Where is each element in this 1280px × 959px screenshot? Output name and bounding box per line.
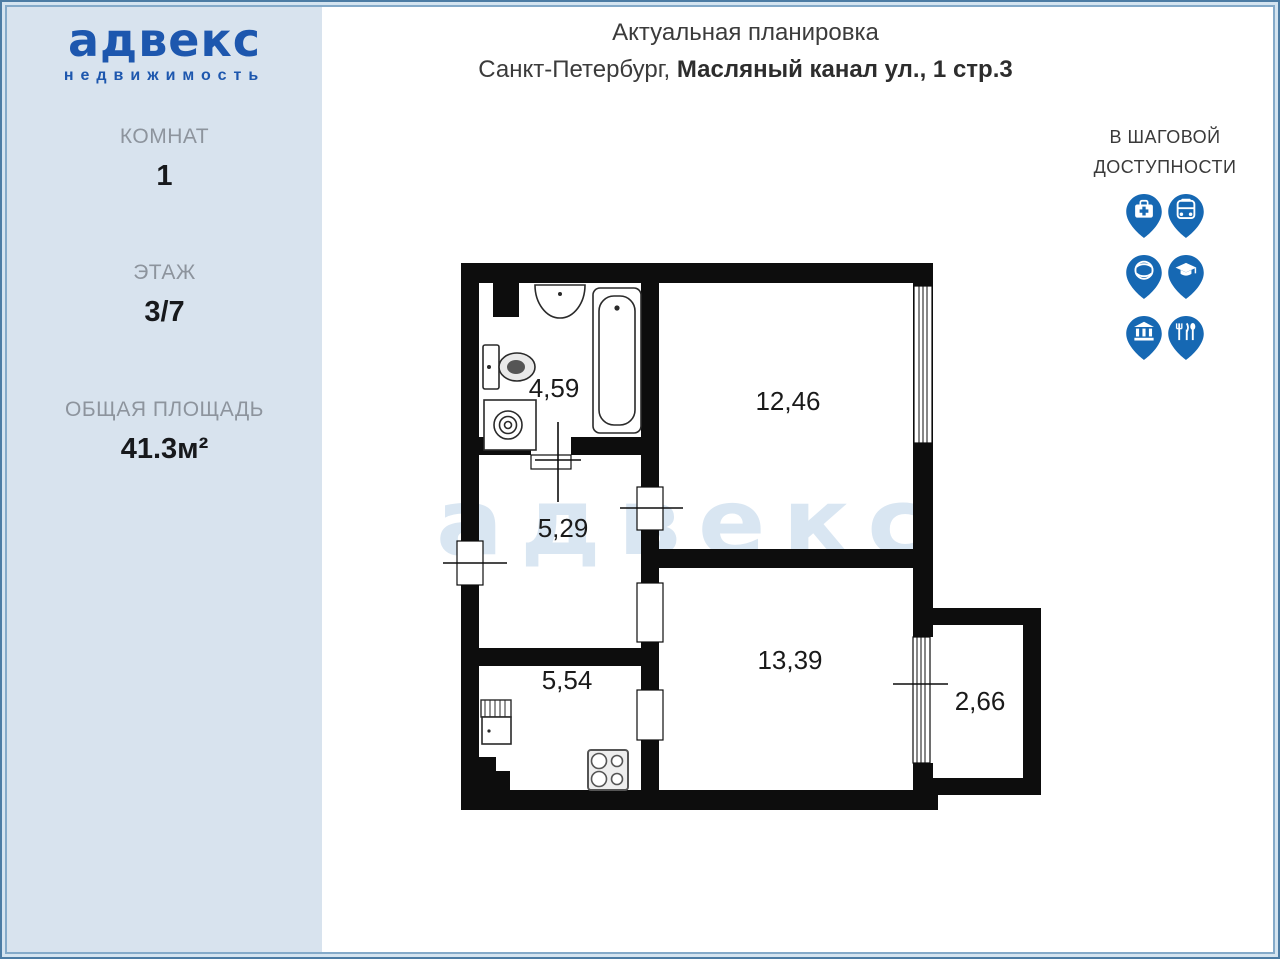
walkability-block: В ШАГОВОЙ ДОСТУПНОСТИ: [1075, 122, 1255, 361]
bedroom-door: [620, 487, 683, 530]
bathroom-area-label: 4,59: [529, 373, 580, 403]
sink-icon: [535, 285, 585, 318]
outer-frame: адвекс недвижимость КОМНАТ 1 ЭТАЖ 3/7 ОБ…: [2, 2, 1278, 957]
agency-logo: адвекс недвижимость: [7, 17, 322, 85]
main-panel: Актуальная планировка Санкт-Петербург, М…: [322, 7, 1273, 952]
stat-total-area-value: 41.3м²: [7, 433, 322, 466]
walkability-heading-line2: ДОСТУПНОСТИ: [1075, 152, 1255, 182]
address-line: Санкт-Петербург, Масляный канал ул., 1 с…: [322, 56, 1169, 84]
agency-brand-name: адвекс: [7, 17, 322, 63]
medical-icon: [1125, 193, 1163, 239]
stat-total-area-label: ОБЩАЯ ПЛОЩАДЬ: [7, 398, 322, 422]
bedroom-window: [914, 286, 932, 443]
header: Актуальная планировка Санкт-Петербург, М…: [322, 19, 1273, 84]
agency-tagline: недвижимость: [7, 66, 322, 85]
kitchen-sink-icon: [481, 700, 511, 744]
entry-door: [443, 541, 507, 585]
museum-icon: [1125, 315, 1163, 361]
stat-floor-value: 3/7: [7, 296, 322, 329]
bedroom-area-label: 12,46: [755, 386, 820, 416]
address-city: Санкт-Петербург,: [478, 56, 677, 83]
stat-floor-label: ЭТАЖ: [7, 261, 322, 285]
stat-rooms-value: 1: [7, 160, 322, 193]
bus-icon: [1167, 193, 1205, 239]
bathtub-icon: [593, 288, 641, 433]
stove-icon: [588, 750, 628, 790]
washing-machine-icon: [484, 400, 536, 450]
restaurant-icon: [1167, 315, 1205, 361]
sport-icon: [1125, 254, 1163, 300]
kitchen-area-label: 5,54: [542, 665, 593, 695]
balcony-window: [893, 637, 948, 763]
living-room-opening: [637, 583, 663, 642]
sidebar: адвекс недвижимость КОМНАТ 1 ЭТАЖ 3/7 ОБ…: [7, 7, 322, 952]
hallway-area-label: 5,29: [538, 513, 589, 543]
kitchen-opening: [637, 690, 663, 740]
stat-rooms-label: КОМНАТ: [7, 125, 322, 149]
floor-plan: 4,59 12,46 5,29 13,39 5,54 2,66: [443, 250, 1063, 820]
page-title: Актуальная планировка: [322, 19, 1169, 47]
stat-rooms: КОМНАТ 1: [7, 125, 322, 193]
inner-frame: адвекс недвижимость КОМНАТ 1 ЭТАЖ 3/7 ОБ…: [5, 5, 1275, 954]
stat-floor: ЭТАЖ 3/7: [7, 261, 322, 329]
stat-total-area: ОБЩАЯ ПЛОЩАДЬ 41.3м²: [7, 398, 322, 466]
education-icon: [1167, 254, 1205, 300]
balcony-area-label: 2,66: [955, 686, 1006, 716]
bathroom-door: [531, 422, 581, 502]
walkability-icons: [1075, 193, 1255, 361]
walkability-heading-line1: В ШАГОВОЙ: [1075, 122, 1255, 152]
toilet-icon: [483, 345, 535, 389]
address-street: Масляный канал ул., 1 стр.3: [677, 56, 1013, 83]
living-room-area-label: 13,39: [757, 645, 822, 675]
